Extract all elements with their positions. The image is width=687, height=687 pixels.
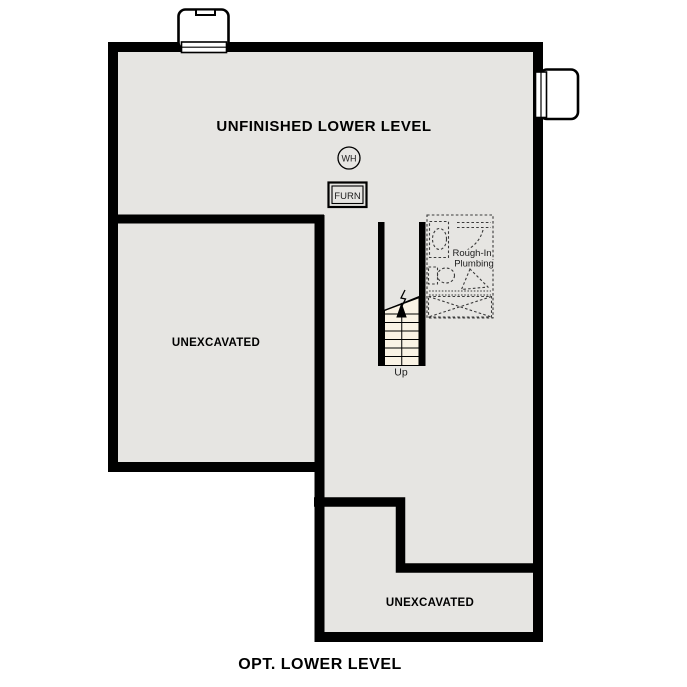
stairs-direction-label: Up	[394, 367, 408, 379]
rough-in-label-line1: Rough-In	[452, 248, 491, 259]
floor-plan-canvas: Up Rough-In Plumbing WH	[0, 0, 687, 687]
stair-wall-right	[419, 222, 426, 366]
window-well-top	[179, 10, 229, 53]
floor-plan-drawing: Up Rough-In Plumbing WH	[0, 0, 687, 687]
furnace-label: FURN	[334, 191, 361, 202]
plan-title: OPT. LOWER LEVEL	[238, 656, 402, 673]
window-well-right	[536, 70, 579, 120]
window-well-top-cap	[196, 10, 215, 16]
main-area-label: UNFINISHED LOWER LEVEL	[216, 118, 431, 135]
rough-in-label-line2: Plumbing	[454, 259, 494, 270]
unexcavated-left-label: UNEXCAVATED	[172, 337, 260, 349]
water-heater-label: WH	[342, 154, 357, 164]
unexcavated-bottom-label: UNEXCAVATED	[386, 597, 474, 609]
stair-wall-left	[378, 222, 385, 366]
